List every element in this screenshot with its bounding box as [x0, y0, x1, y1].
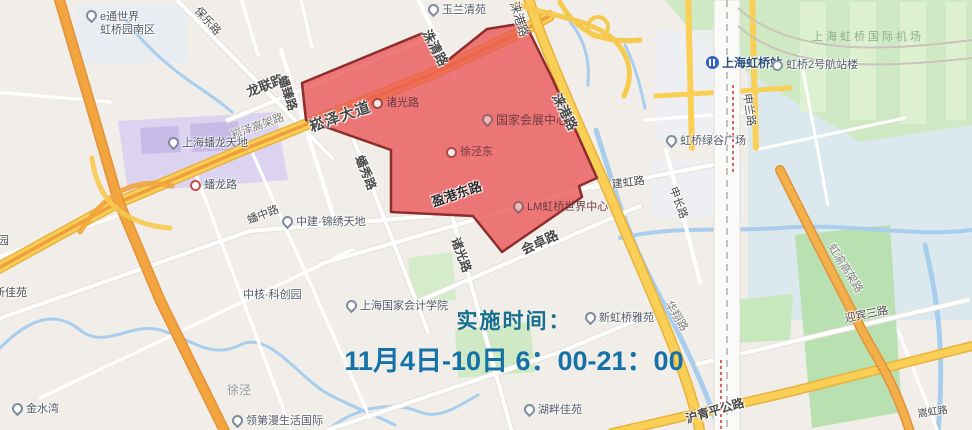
poi-necc: 国家会展中心 [482, 114, 568, 126]
poi-pin-icon [522, 402, 538, 418]
poi-shanghai-panlong: 上海蟠龙天地 [168, 138, 248, 149]
announcement-title: 实施时间： [318, 305, 710, 335]
poi-zhonghe-park: 中核·科创园 [243, 290, 302, 301]
station-label: 诸光路 [386, 98, 419, 109]
poi-label: 金水湾 [26, 404, 59, 415]
poi-pin-icon [426, 2, 442, 18]
map-screenshot[interactable]: 保乐路 龙联路 洙清路 蟠臻路 崧泽高架路 崧泽大道 蟠中路 蟠秀路 盈港东路 … [0, 0, 972, 430]
poi-jinshuiwan: 金水湾 [12, 404, 59, 415]
poi-label: 国家会展中心 [496, 114, 568, 126]
poi-label: 领第漫生活国际 [246, 416, 323, 427]
poi-label: 中核·科创园 [243, 290, 302, 301]
poi-hupan-jiayuan: 湖畔佳苑 [524, 405, 582, 416]
airport-label: 上海虹桥国际机场 [812, 32, 924, 43]
station-label: 虹桥2号航站楼 [786, 60, 858, 71]
metro-station-icon [372, 98, 383, 109]
station-label: 蟠龙路 [204, 180, 237, 191]
station-xujingdong: 徐泾东 [446, 147, 493, 158]
station-panlong-rd: 蟠龙路 [190, 180, 237, 191]
announcement-schedule: 11月4日-10日 6：00-21：00 [318, 339, 710, 378]
poi-label: 虹桥园南区 [100, 25, 155, 36]
station-terminal2: 虹桥2号航站楼 [772, 60, 858, 71]
poi-pin-icon [230, 413, 246, 429]
station-label: 徐泾东 [460, 147, 493, 158]
poi-pin-icon [166, 135, 182, 151]
poi-lm-center: LM虹桥世界中心 [513, 202, 608, 213]
railway-station-icon [706, 56, 719, 69]
poi-label-xinjiayuan: 新佳苑 [0, 288, 27, 299]
poi-hongqiao-railway-station: 上海虹桥站 [706, 56, 782, 69]
poi-pin-icon [10, 401, 26, 417]
poi-label: LM虹桥世界中心 [527, 202, 608, 213]
poi-label: 上海蟠龙天地 [182, 138, 248, 149]
poi-pin-icon [480, 111, 496, 127]
poi-etong-world: e通世界 虹桥园南区 [86, 12, 155, 38]
poi-lingdiman: 领第漫生活国际 [232, 416, 323, 427]
district-label-xujing: 徐泾 [227, 384, 251, 396]
metro-station-icon [190, 180, 201, 191]
metro-station-icon [772, 60, 783, 71]
poi-label: e通世界 [100, 12, 155, 23]
announcement: 实施时间： 11月4日-10日 6：00-21：00 [318, 305, 710, 378]
poi-label: 中建·锦绣天地 [296, 217, 366, 228]
poi-zhongjian-jinxiu: 中建·锦绣天地 [282, 217, 366, 228]
metro-station-icon [446, 147, 457, 158]
poi-label: 虹桥绿谷广场 [680, 136, 746, 147]
poi-green-valley: 虹桥绿谷广场 [666, 136, 746, 147]
poi-pin-icon [511, 199, 527, 215]
poi-label: 湖畔佳苑 [538, 405, 582, 416]
poi-label-yuan-partial: 园 [0, 236, 9, 247]
station-zhuguang-rd: 诸光路 [372, 98, 419, 109]
poi-yulan-qingyuan: 玉兰清苑 [428, 5, 486, 16]
poi-pin-icon [664, 133, 680, 149]
poi-label: 玉兰清苑 [442, 5, 486, 16]
poi-pin-icon [280, 214, 296, 230]
